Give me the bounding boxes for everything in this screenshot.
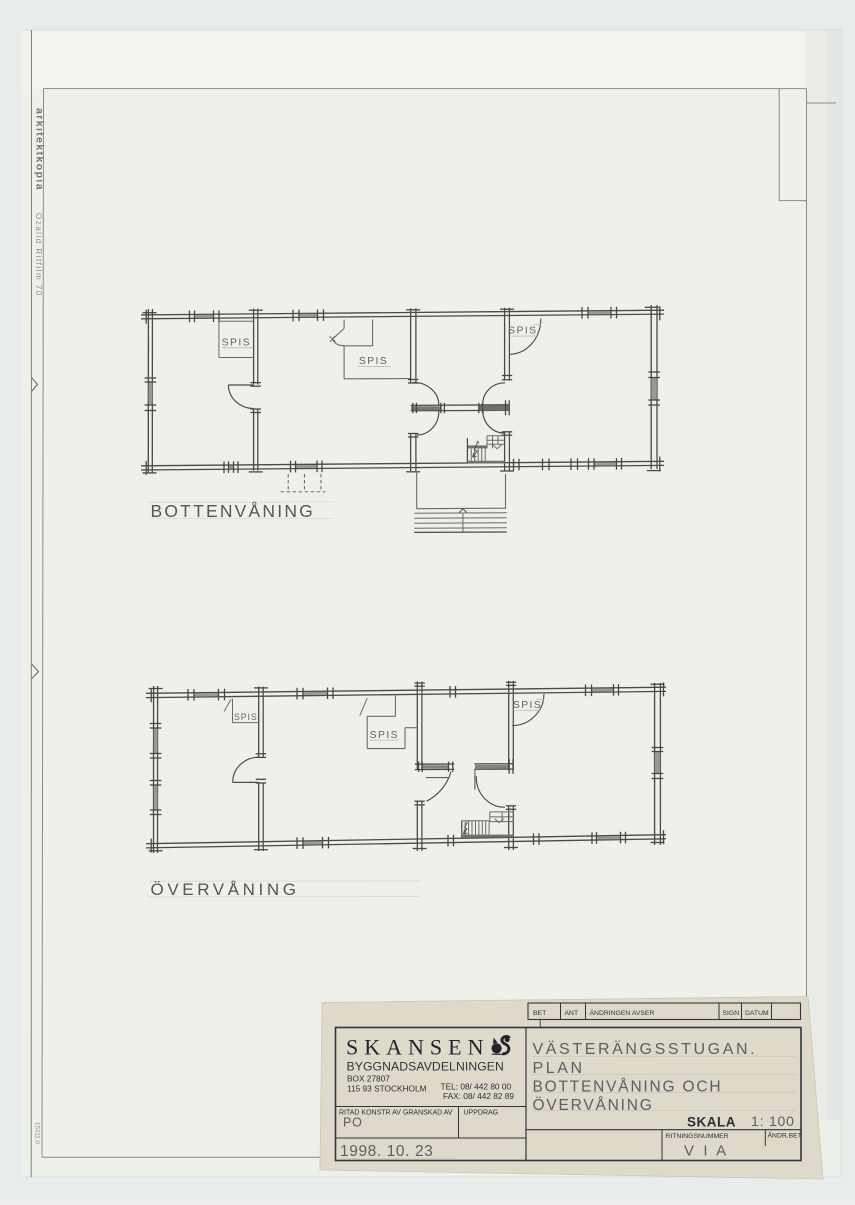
- svg-text:1: 100: 1: 100: [751, 1113, 795, 1129]
- svg-text:1998. 10. 23: 1998. 10. 23: [340, 1143, 433, 1160]
- svg-text:SKANSEN: SKANSEN: [346, 1035, 489, 1060]
- svg-text:Ozalid Ritfilm 70: Ozalid Ritfilm 70: [34, 213, 43, 297]
- svg-text:SPIS: SPIS: [222, 338, 251, 349]
- svg-text:SKALA: SKALA: [687, 1115, 736, 1130]
- svg-text:FAX: 08/ 442 82 89: FAX: 08/ 442 82 89: [443, 1091, 514, 1101]
- svg-text:ÄNDRINGEN AVSER: ÄNDRINGEN AVSER: [590, 1009, 655, 1017]
- svg-text:PO: PO: [343, 1116, 363, 1130]
- svg-text:V I A: V I A: [684, 1143, 729, 1160]
- svg-text:115 93 STOCKHOLM: 115 93 STOCKHOLM: [347, 1083, 427, 1093]
- svg-text:ANT: ANT: [565, 1010, 579, 1017]
- svg-text:RITNINGSNUMMER: RITNINGSNUMMER: [666, 1133, 729, 1140]
- svg-text:PLAN: PLAN: [533, 1060, 585, 1077]
- svg-text:ÅNDR.BET: ÅNDR.BET: [768, 1130, 802, 1139]
- svg-text:UPPDRAG: UPPDRAG: [464, 1109, 499, 1116]
- svg-text:SPIS: SPIS: [359, 356, 388, 367]
- svg-text:SPIS: SPIS: [513, 700, 542, 711]
- svg-text:ÖVERVÅNING: ÖVERVÅNING: [533, 1096, 654, 1114]
- svg-text:BYGGNADSAVDELNINGEN: BYGGNADSAVDELNINGEN: [347, 1059, 504, 1073]
- svg-text:BET: BET: [533, 1010, 546, 1017]
- svg-text:BOTTENVÅNING OCH: BOTTENVÅNING OCH: [533, 1079, 723, 1096]
- svg-text:SPIS: SPIS: [234, 712, 258, 722]
- svg-text:15311.0: 15311.0: [34, 1122, 41, 1144]
- svg-text:TEL: 08/ 442 80 00: TEL: 08/ 442 80 00: [441, 1081, 512, 1091]
- svg-text:BOX 27807: BOX 27807: [347, 1074, 390, 1084]
- svg-text:BOTTENVÅNING: BOTTENVÅNING: [151, 501, 315, 521]
- svg-text:SIGN: SIGN: [723, 1010, 740, 1017]
- svg-text:VÄSTERÄNGSSTUGAN.: VÄSTERÄNGSSTUGAN.: [533, 1040, 758, 1058]
- svg-text:SPIS: SPIS: [370, 730, 399, 741]
- svg-text:SPIS: SPIS: [508, 326, 537, 337]
- svg-text:ÖVERVÅNING: ÖVERVÅNING: [151, 880, 300, 899]
- svg-text:DATUM: DATUM: [745, 1010, 769, 1017]
